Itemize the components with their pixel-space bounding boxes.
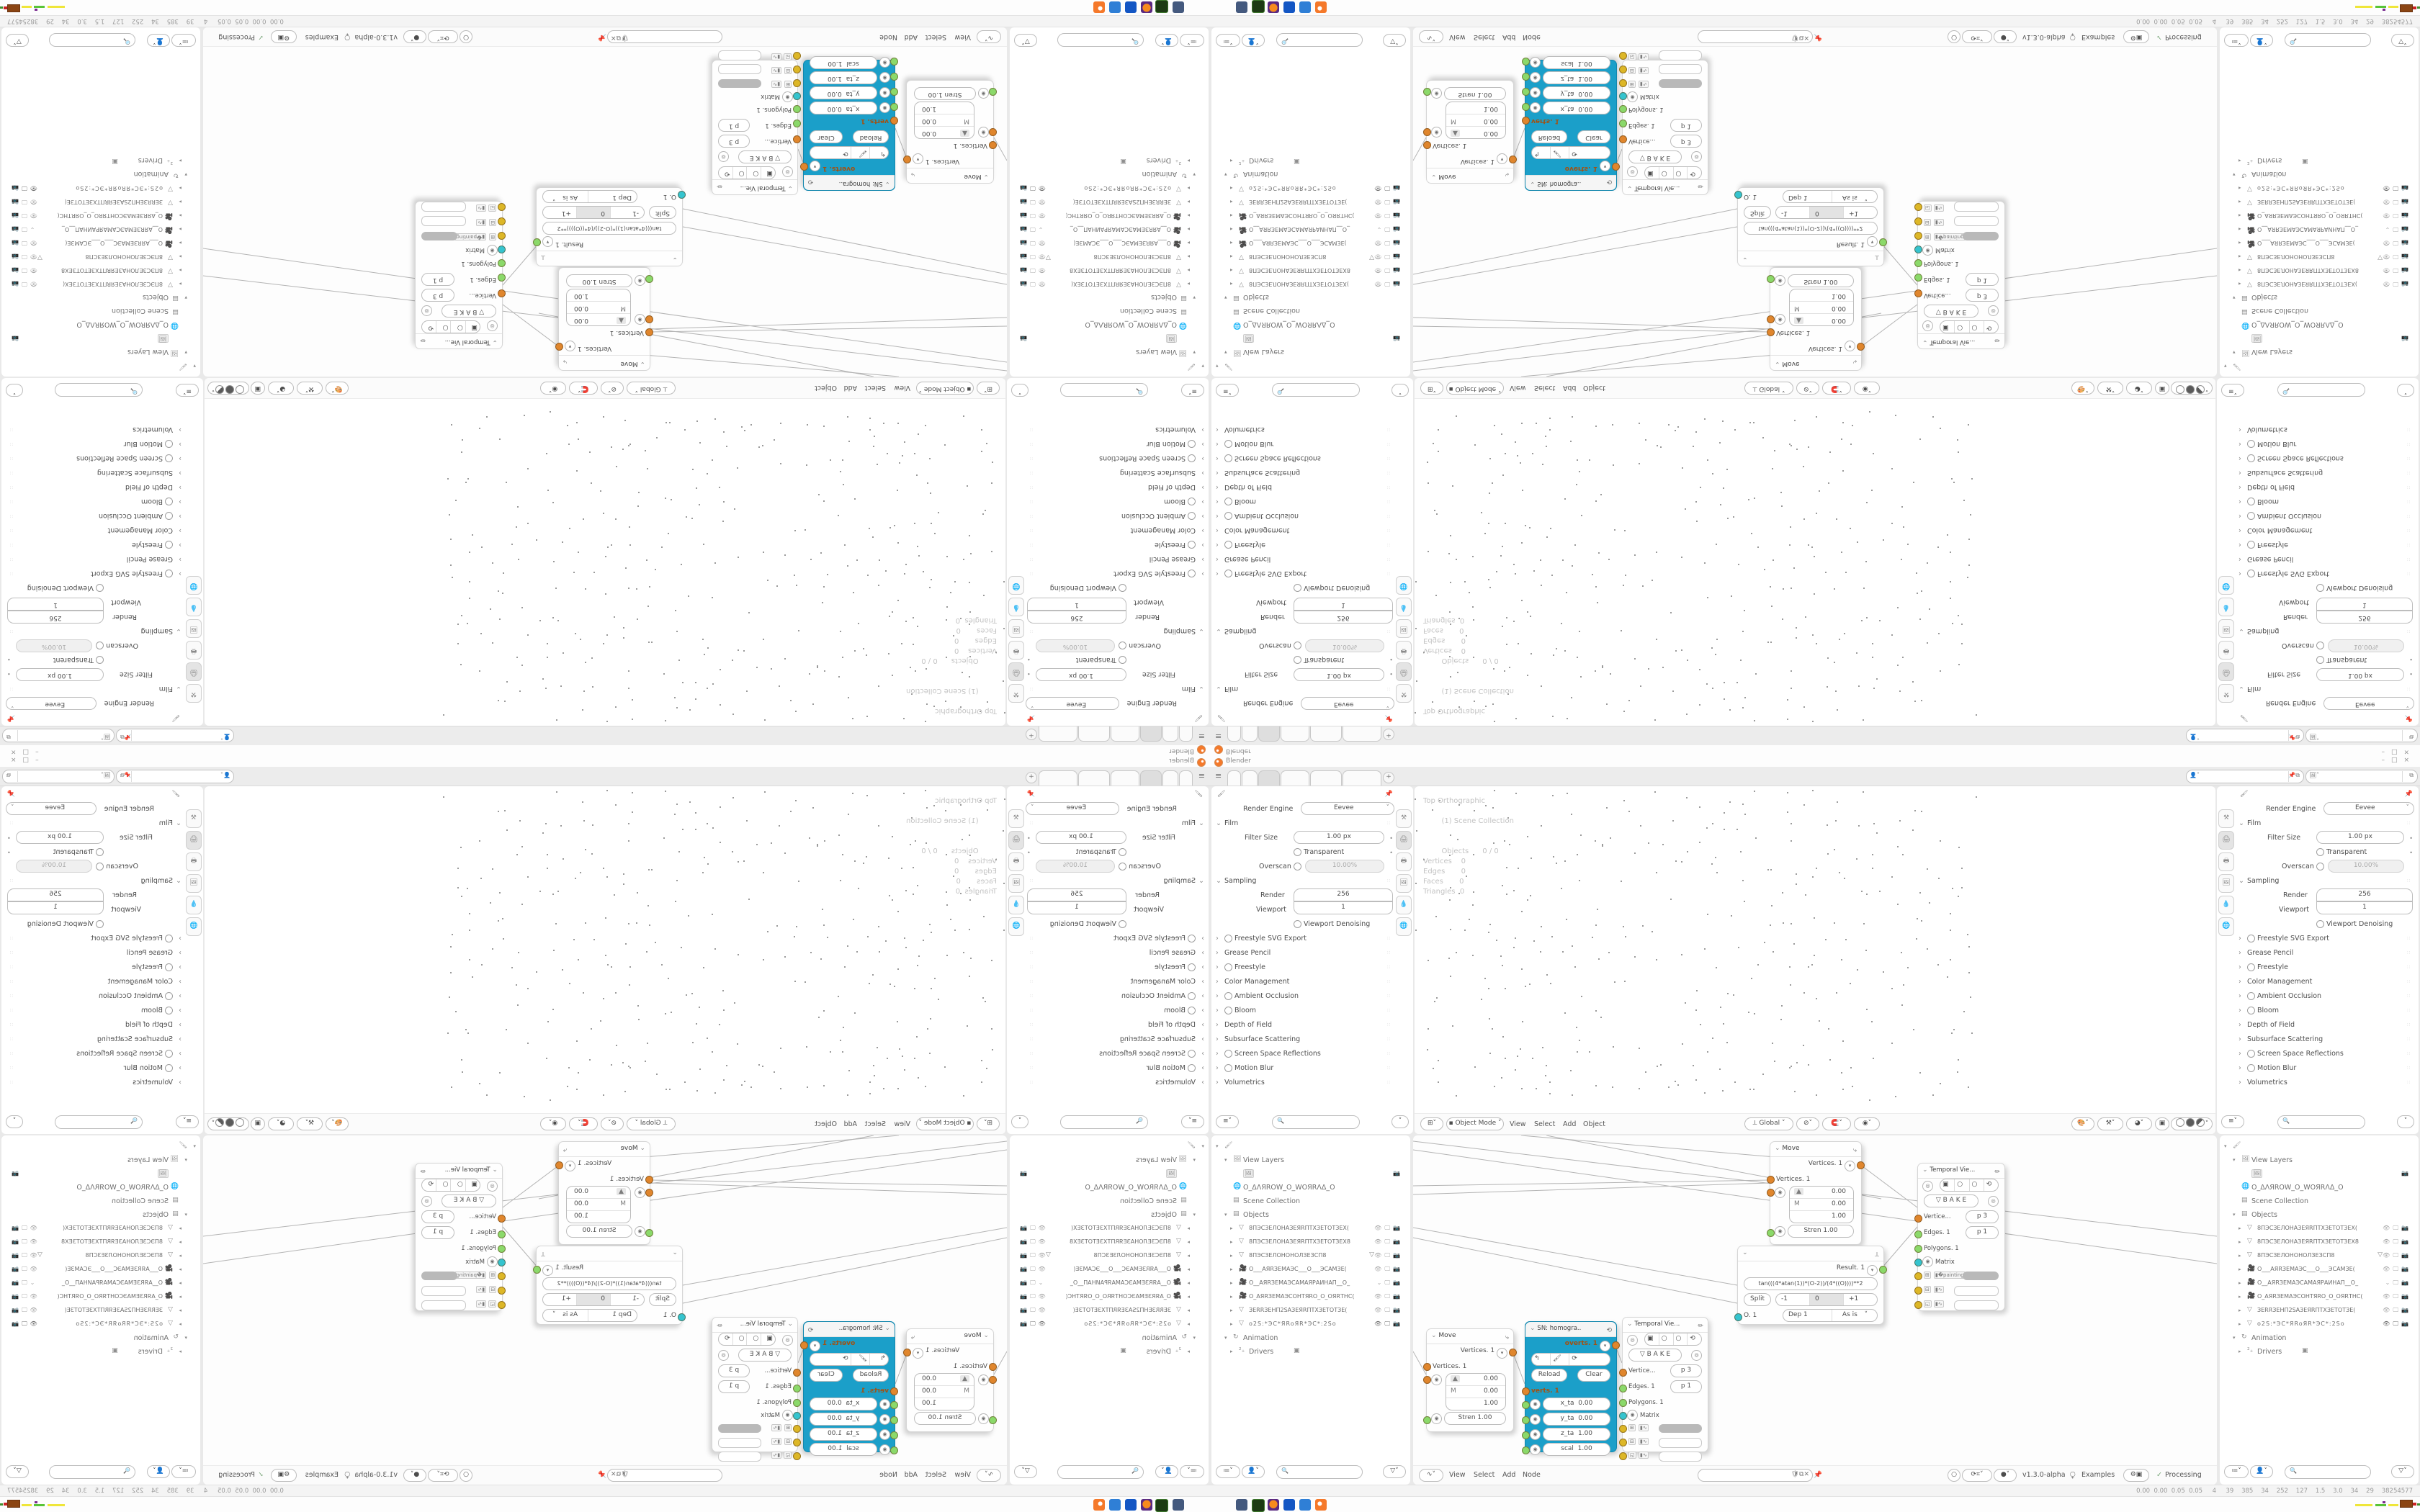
camera-icon[interactable]: 📷 xyxy=(1017,336,1027,342)
bloom-checkbox[interactable] xyxy=(1188,1007,1196,1014)
render-layer-badge[interactable]: 🖼 xyxy=(1243,1169,1254,1178)
visibility-icons[interactable]: 👁🖵📷 xyxy=(1374,198,1403,205)
output-tab-icon[interactable]: 🖶 xyxy=(2218,641,2234,660)
visibility-icons[interactable]: 👁🖵📷 xyxy=(1017,1266,1046,1273)
depth-of-field-section[interactable]: Depth of Field xyxy=(2247,483,2295,491)
editor-type-button[interactable]: ≔˅ xyxy=(171,34,196,47)
editor-type-button[interactable]: ≔˅ xyxy=(2224,34,2249,47)
lifebuoy-icon[interactable]: ◎ xyxy=(718,1350,729,1361)
visibility-icons[interactable]: 👁🖵📷 xyxy=(1374,1238,1403,1246)
objects-collection-item[interactable]: Objects xyxy=(1243,293,1269,301)
bloom-section[interactable]: Bloom xyxy=(1164,1007,1186,1014)
ssr-section[interactable]: Screen Space Reflections xyxy=(76,1050,163,1058)
pin-icon[interactable]: 📌 xyxy=(1814,33,1822,41)
pin-copy-icons[interactable]: 📌⧉ xyxy=(2288,733,2300,740)
grease-pencil-section[interactable]: Grease Pencil xyxy=(1224,949,1270,957)
matrix-toggle[interactable]: ◉ xyxy=(782,1410,793,1421)
workspace-tab[interactable] xyxy=(1162,770,1178,786)
dep-field[interactable]: Dep 1 xyxy=(1783,191,1832,202)
formula-field[interactable]: tan(((4*atan(1))*(O-2))/(4*((O))))**2 xyxy=(1744,222,1878,235)
bloom-checkbox[interactable] xyxy=(2247,498,2255,505)
view-layer-tab-icon[interactable]: 🖼 xyxy=(1396,619,1412,638)
refresh-button[interactable]: ⟲ xyxy=(719,1333,732,1345)
input-socket[interactable] xyxy=(678,191,686,199)
pin-copy-icons[interactable]: 📌⧉ xyxy=(120,733,132,740)
render-layer-badge[interactable]: 🖼 xyxy=(1166,334,1177,343)
minimize-button[interactable]: – xyxy=(29,748,39,755)
examples-menu[interactable]: Examples xyxy=(305,1471,339,1479)
input-socket[interactable] xyxy=(1914,246,1922,253)
color-management-section[interactable]: Color Management xyxy=(1224,526,1289,534)
volumetrics-section[interactable]: Volumetrics xyxy=(1155,426,1196,433)
motion-blur-checkbox[interactable] xyxy=(1224,440,1232,448)
layout-toggle-buttons[interactable]: ⚙▣ xyxy=(2123,30,2149,43)
input-socket[interactable] xyxy=(1619,1439,1627,1446)
motion-blur-checkbox[interactable] xyxy=(1224,1064,1232,1072)
freestyle-section[interactable]: Freestyle xyxy=(2257,963,2288,971)
input-socket[interactable] xyxy=(989,1416,997,1424)
output-tab-icon[interactable]: 🖶 xyxy=(186,641,202,660)
filter-size-field[interactable]: 1.00 px xyxy=(16,668,104,681)
mode-select[interactable]: ▪ Object Mode ˅ xyxy=(916,382,974,395)
volumetrics-section[interactable]: Volumetrics xyxy=(1224,1079,1265,1086)
input-socket[interactable] xyxy=(1767,1229,1775,1237)
close-button[interactable]: × xyxy=(2403,748,2416,755)
viewport-denoising-checkbox[interactable] xyxy=(1119,920,1126,928)
visibility-icons[interactable]: 👁🖵📷 xyxy=(1374,253,1403,260)
preview-toggle[interactable]: ○ xyxy=(460,30,472,43)
visibility-icons[interactable]: 👁🖵📷 xyxy=(1374,1225,1403,1232)
move-node[interactable]: ⌄ Move⤷ Vertices. 1 ▾ Vertices. 1 ◉ ▲0.0… xyxy=(1770,267,1862,371)
scale-field[interactable]: scal 1.00 xyxy=(1543,1443,1610,1456)
motion-blur-section[interactable]: Motion Blur xyxy=(1234,440,1273,448)
minimize-button[interactable]: – xyxy=(2381,748,2391,755)
output-socket[interactable] xyxy=(1612,1341,1620,1349)
shading-mode-buttons[interactable]: ˅ xyxy=(2171,1117,2213,1130)
increment-button[interactable]: +1 xyxy=(1844,207,1877,218)
x-target-field[interactable]: x_ta 0.00 xyxy=(1543,1398,1610,1410)
vertices-count-field[interactable]: p 3 xyxy=(718,135,750,148)
visibility-icons[interactable]: 👁🖵📷 xyxy=(2383,198,2411,205)
input-socket[interactable] xyxy=(498,1301,506,1309)
render-preview-toggle[interactable]: ▣ xyxy=(251,1117,265,1130)
film-section[interactable]: Film xyxy=(159,819,173,827)
ssr-section[interactable]: Screen Space Reflections xyxy=(2257,1050,2344,1058)
visibility-icons[interactable]: 👁🖵📷 xyxy=(1374,1293,1403,1300)
scene-collection-item[interactable]: Scene Collection xyxy=(112,1197,169,1205)
sampling-section[interactable]: Sampling xyxy=(1164,627,1196,635)
input-socket[interactable] xyxy=(890,1387,898,1395)
object-item[interactable]: ЗЕRRЗЕНП2SАЗЕЯRПТХЗЕТОТЗЕ( xyxy=(36,199,163,205)
freestyle-section[interactable]: Freestyle xyxy=(132,963,163,971)
object-item[interactable]: O_АЯRЗЕМАЭСОНТЯRO_O_OЯRТНС( xyxy=(2257,212,2384,219)
pin-icon[interactable]: 📌 xyxy=(598,1471,606,1479)
visibility-icons[interactable]: 👁🖵📷 xyxy=(1374,1266,1403,1273)
samples-viewport-field[interactable]: 1 xyxy=(2316,901,2413,914)
workspace-tab[interactable] xyxy=(1227,726,1241,742)
scene-tab-icon[interactable]: 💧 xyxy=(186,896,202,914)
ambient-occlusion-section[interactable]: Ambient Occlusion xyxy=(99,512,163,520)
editor-type-button[interactable]: ⊞˅ xyxy=(1420,1117,1443,1130)
bake-button[interactable]: ▽ B A K E xyxy=(1628,150,1682,163)
visibility-icons[interactable]: 👁🖵📷 xyxy=(1017,1252,1046,1259)
toggle-icon[interactable]: ◉ xyxy=(635,1187,645,1198)
freestyle-svg-checkbox[interactable] xyxy=(1224,570,1232,577)
bloom-section[interactable]: Bloom xyxy=(141,498,163,505)
drivers-item[interactable]: Drivers xyxy=(1147,1348,1171,1356)
ambient-occlusion-checkbox[interactable] xyxy=(2247,992,2255,1000)
objects-collection-item[interactable]: Objects xyxy=(1151,1211,1177,1219)
bloom-section[interactable]: Bloom xyxy=(141,1007,163,1014)
object-item[interactable]: 8ПЭСЗЕЛОНАЗЕЯRПТХЗЕТОТЗЕХ( xyxy=(36,281,163,287)
menu-icon[interactable]: ≡ xyxy=(1198,732,1205,741)
firefox-icon[interactable] xyxy=(1141,1499,1152,1511)
cube-display-button[interactable]: ▣ xyxy=(1645,167,1659,179)
examples-menu[interactable]: Examples xyxy=(2081,1471,2115,1479)
formula-field[interactable]: tan(((4*atan(1))*(O-2))/(4*((O))))**2 xyxy=(1744,1277,1878,1290)
menu-node[interactable]: Node xyxy=(879,33,897,41)
xray-toggle[interactable]: ◕˅ xyxy=(2126,1117,2152,1130)
object-item[interactable]: 8ПЭСЗЕЛОНАЗЕЯRПТХЗЕТОТЗЕХ8 xyxy=(1044,267,1171,274)
editor-type-button[interactable]: ≔˅ xyxy=(1216,34,1240,47)
reload-button[interactable]: Reload xyxy=(853,130,889,143)
subsurface-section[interactable]: Subsurface Scattering xyxy=(97,1035,173,1043)
input-socket[interactable] xyxy=(793,1412,801,1420)
input-socket[interactable] xyxy=(1914,232,1922,240)
edges-count-field[interactable]: p 1 xyxy=(1670,119,1702,132)
as-is-select[interactable]: As is ˅ xyxy=(1832,1310,1877,1321)
visibility-icons[interactable]: 👁🖵📷 xyxy=(1017,253,1046,260)
temporal-viewer-node[interactable]: ⌄ Temporal Vie...✏ ◎▣○○⟲ ▽ B A K E◎ Vert… xyxy=(415,1163,503,1311)
samples-viewport-field[interactable]: 1 xyxy=(1027,901,1126,914)
object-item[interactable]: ЗЕRRЗЕНП2SАЗЕЯRПТХЗЕТОТЗЕ( xyxy=(1044,199,1171,205)
world-tab-icon[interactable]: 🌐 xyxy=(1008,917,1024,936)
transparent-checkbox[interactable] xyxy=(96,848,104,856)
magnet-snap-button[interactable]: 🧲˅ xyxy=(1822,1117,1851,1130)
object-item[interactable]: O___АЯRЗЕМАЭС___O___ЭСАМЗЕ( xyxy=(2257,240,2384,246)
add-workspace-button[interactable]: + xyxy=(1026,729,1037,740)
object-item[interactable]: O__АЯRЗЕМАЭСАМАЯРАИНАП__O_ xyxy=(36,226,163,233)
menu-icon[interactable]: ≡ xyxy=(1215,771,1222,780)
motion-blur-section[interactable]: Motion Blur xyxy=(2257,440,2296,448)
pin-icon[interactable]: 📌 xyxy=(1027,714,1035,721)
render-engine-select[interactable]: Eevee˅ xyxy=(1026,802,1119,815)
viewport-denoising-checkbox[interactable] xyxy=(2316,584,2324,592)
input-socket[interactable] xyxy=(793,66,801,73)
viewport-3d[interactable]: Top Orthographic (1) Scene Collection Ob… xyxy=(1415,786,2215,1134)
editor-type-button[interactable]: ⊞˅ xyxy=(977,382,1000,395)
input-socket[interactable] xyxy=(1619,120,1627,127)
bloom-section[interactable]: Bloom xyxy=(1234,1007,1256,1014)
add-workspace-button[interactable]: + xyxy=(1026,772,1037,783)
paint-button[interactable]: 🖌 xyxy=(1551,147,1569,158)
archive-tool-icon[interactable] xyxy=(1283,1,1295,13)
bloom-checkbox[interactable] xyxy=(1188,498,1196,505)
matrix-toggle[interactable]: ◉ xyxy=(487,245,498,256)
edges-count-field[interactable]: p 1 xyxy=(718,1380,750,1393)
as-is-select[interactable]: As is ˅ xyxy=(543,1310,588,1321)
screen-capture-icon[interactable] xyxy=(1236,1499,1247,1511)
subsurface-section[interactable]: Subsurface Scattering xyxy=(1120,1035,1196,1043)
transparent-checkbox[interactable] xyxy=(1294,848,1301,856)
freestyle-checkbox[interactable] xyxy=(1188,963,1196,971)
workspace-tab[interactable] xyxy=(1281,770,1309,786)
sn-homography-node[interactable]: ⌄ SN: homogra..⟲ overts. 1 ▾ ↰🖌⟳ Updat..… xyxy=(803,60,895,191)
visibility-icons[interactable]: 👁🖵📷 xyxy=(9,1320,37,1328)
scene-collection-item[interactable]: Scene Collection xyxy=(1120,307,1177,315)
depth-of-field-section[interactable]: Depth of Field xyxy=(2247,1021,2295,1029)
freestyle-svg-section[interactable]: Freestyle SVG Export xyxy=(91,570,163,577)
tool-tab-icon[interactable]: ⚒ xyxy=(1396,809,1412,828)
input-socket[interactable] xyxy=(1423,1363,1431,1371)
object-item[interactable]: 8ПЭСЗЕЛОНОНОЛЗЕЗСП8 xyxy=(2257,253,2374,260)
input-socket[interactable] xyxy=(645,1189,653,1197)
proportional-edit-button[interactable]: ◉˅ xyxy=(1854,382,1880,395)
cube-display-button[interactable]: ▣ xyxy=(761,1333,775,1345)
mode-select[interactable]: ▪ Object Mode ˅ xyxy=(916,1117,974,1130)
ambient-occlusion-checkbox[interactable] xyxy=(165,512,173,520)
tool-tab-icon[interactable]: ⚒ xyxy=(186,684,202,703)
output-tab-icon[interactable]: 🖶 xyxy=(1008,852,1024,871)
drivers-item[interactable]: Drivers xyxy=(2257,156,2282,164)
editor-type-button[interactable]: ≡˅ xyxy=(2221,384,2244,397)
menu-add[interactable]: Add xyxy=(905,33,918,41)
animation-item[interactable]: Animation xyxy=(1243,170,1278,178)
scene-collection-item[interactable]: Scene Collection xyxy=(2251,1197,2308,1205)
eye-toggle[interactable]: ◎ xyxy=(487,1181,498,1192)
viewport-denoising-checkbox[interactable] xyxy=(1119,584,1126,592)
object-item[interactable]: ЗЕRRЗЕНП2SАЗЕЯRПТХЗЕТОТЗЕ( xyxy=(2257,1307,2384,1313)
decrement-button[interactable]: -1 xyxy=(610,207,644,218)
freestyle-svg-checkbox[interactable] xyxy=(1188,935,1196,942)
image-viewer-icon[interactable] xyxy=(1299,1499,1311,1511)
sphere-dropdown[interactable]: ●˅ xyxy=(1994,1469,2017,1482)
display-mode-button[interactable]: 👤˅ xyxy=(2250,34,2273,47)
visibility-icons[interactable]: 👁🖵📷 xyxy=(1017,1225,1046,1232)
overscan-checkbox[interactable] xyxy=(96,642,104,649)
render-engine-select[interactable]: Eevee˅ xyxy=(6,802,97,815)
film-section[interactable]: Film xyxy=(2247,685,2261,693)
xray-toggle[interactable]: ◕˅ xyxy=(2126,382,2152,395)
layout-toggle-buttons[interactable]: ⚙▣ xyxy=(2123,1469,2149,1482)
input-socket[interactable] xyxy=(678,1313,686,1321)
visibility-icons[interactable]: 👁🖵📷 xyxy=(9,212,37,219)
lifebuoy-icon[interactable]: ◎ xyxy=(1691,151,1702,162)
depth-of-field-section[interactable]: Depth of Field xyxy=(1148,483,1196,491)
freestyle-checkbox[interactable] xyxy=(165,963,173,971)
editor-type-button[interactable]: ≡˅ xyxy=(176,384,199,397)
world-tab-icon[interactable]: 🌐 xyxy=(1008,576,1024,595)
world-tab-icon[interactable]: 🌐 xyxy=(2218,576,2234,595)
visibility-icons[interactable]: 👁🖵📷 xyxy=(1017,266,1046,274)
depth-of-field-section[interactable]: Depth of Field xyxy=(1224,1021,1272,1029)
view-layer-tab-icon[interactable]: 🖼 xyxy=(186,619,202,638)
visibility-icons[interactable]: 👁🖵📷 xyxy=(9,1238,37,1246)
magnet-snap-button[interactable]: 🧲˅ xyxy=(569,382,598,395)
viewport-denoising-checkbox[interactable] xyxy=(96,920,104,928)
input-socket[interactable] xyxy=(890,88,898,96)
vertices-count-field[interactable]: p 3 xyxy=(1966,289,1999,302)
refresh-button[interactable]: ⟲ xyxy=(1688,167,1701,179)
input-socket[interactable] xyxy=(1914,1230,1922,1238)
ambient-occlusion-checkbox[interactable] xyxy=(2247,512,2255,520)
visibility-icons[interactable]: 👁🖵📷 xyxy=(1374,184,1403,192)
input-socket[interactable] xyxy=(1423,1416,1431,1424)
motion-blur-section[interactable]: Motion Blur xyxy=(1147,440,1186,448)
motion-blur-section[interactable]: Motion Blur xyxy=(1234,1064,1273,1072)
archive-tool-icon[interactable] xyxy=(1125,1,1137,13)
object-item[interactable]: 8ПЭСЗЕЛОНАЗЕЯRПТХЗЕТОТЗЕХ8 xyxy=(36,1238,163,1245)
display-mode-button[interactable]: 👤˅ xyxy=(147,1465,170,1478)
z-target-field[interactable]: z_ta 1.00 xyxy=(1543,1428,1610,1441)
color-management-section[interactable]: Color Management xyxy=(1131,526,1196,534)
matrix-toggle[interactable]: ◉ xyxy=(487,1256,498,1267)
visibility-icons[interactable]: 👁🖵📷 xyxy=(9,198,37,205)
ssr-section[interactable]: Screen Space Reflections xyxy=(1099,454,1186,462)
temporal-viewer-node[interactable]: ⌄ Temporal Vie...✏ ◎▣○○⟲ ▽ B A K E◎ Vert… xyxy=(415,201,503,349)
view-layer-tab-icon[interactable]: 🖼 xyxy=(2218,619,2234,638)
ambient-occlusion-section[interactable]: Ambient Occlusion xyxy=(1234,992,1299,1000)
workspace-tab[interactable] xyxy=(1039,770,1077,786)
ssr-checkbox[interactable] xyxy=(1224,1050,1232,1058)
sampling-section[interactable]: Sampling xyxy=(2247,877,2279,885)
freestyle-svg-section[interactable]: Freestyle SVG Export xyxy=(1113,570,1186,577)
ssr-checkbox[interactable] xyxy=(2247,454,2255,462)
shading-mode-buttons[interactable]: ˅ xyxy=(207,1117,249,1130)
objects-collection-item[interactable]: Objects xyxy=(143,293,169,301)
visibility-icons[interactable]: 👁🖵📷 xyxy=(2383,1320,2411,1328)
move-node[interactable]: ⌄ Move⤷ Vertices. 1 ▾ Vertices. 1 ◉ ▲0.0… xyxy=(906,1328,994,1432)
freestyle-section[interactable]: Freestyle xyxy=(132,541,163,549)
refresh-button[interactable]: ⟲ xyxy=(1984,1179,1998,1191)
id-selector-field-2[interactable]: 🖼˅ ⧉ xyxy=(2305,729,2418,742)
menu-add[interactable]: Add xyxy=(844,1120,857,1128)
xray-toggle[interactable]: ◕˅ xyxy=(268,382,294,395)
filter-dropdown[interactable]: ˅ xyxy=(6,1115,23,1128)
samples-render-field[interactable]: 256 xyxy=(2316,888,2413,901)
display-mode-button[interactable]: 👤˅ xyxy=(1242,34,1265,47)
temporal-viewer-node[interactable]: ⌄ Temporal Vie...✏ ◎▣○○⟲ ▽ B A K E◎ Vert… xyxy=(1917,201,2005,349)
motion-blur-section[interactable]: Motion Blur xyxy=(124,1064,163,1072)
input-socket[interactable] xyxy=(989,1363,997,1371)
update-grid-buttons[interactable]: ⟳⌗˅ xyxy=(1962,1469,1992,1482)
node-tree-field[interactable]: 🛡⧉✕ xyxy=(1698,30,1813,43)
pin-icon[interactable]: 📌 xyxy=(1385,791,1393,798)
animation-item[interactable]: Animation xyxy=(2251,170,2286,178)
image-viewer-icon[interactable] xyxy=(1299,1,1311,13)
object-item[interactable]: 8ПЭСЗЕЛОНОНОЛЗЕЗСП8 xyxy=(1249,253,1366,260)
node-editor[interactable]: ⌄ Move⤷ Vertices. 1 ▾ Vertices. 1 ◉ ▲0.0… xyxy=(1413,1135,2217,1485)
filter-funnel-button[interactable]: ▽˅ xyxy=(6,34,29,47)
temporal-viewer-node[interactable]: ⌄ Temporal Vie...✏ ◎▣○○⟲ ▽ B A K E◎ Vert… xyxy=(1622,1317,1708,1452)
volumetrics-section[interactable]: Volumetrics xyxy=(2247,1079,2287,1086)
render-layer-badge[interactable]: 🖼 xyxy=(1166,1169,1177,1178)
input-socket[interactable] xyxy=(793,92,801,100)
samples-render-field[interactable]: 256 xyxy=(1294,611,1393,624)
lifebuoy-icon[interactable]: ◎ xyxy=(1988,1196,1999,1207)
scale-field[interactable]: scal 1.00 xyxy=(810,1443,877,1456)
cube-display-button[interactable]: ▣ xyxy=(465,321,480,333)
blender-taskbar-icon[interactable] xyxy=(1315,1,1327,13)
object-item[interactable]: 8ПЭСЗЕЛОНОНОЛЗЕЗСП8 xyxy=(2257,1252,2374,1259)
x-target-field[interactable]: x_ta 0.00 xyxy=(810,102,877,114)
overscan-checkbox[interactable] xyxy=(1119,642,1126,649)
preview-toggle[interactable]: ○ xyxy=(1948,1469,1960,1482)
samples-render-field[interactable]: 256 xyxy=(7,611,104,624)
visibility-icons[interactable]: 👁🖵📷 xyxy=(1017,239,1046,246)
render-engine-select[interactable]: Eevee˅ xyxy=(1026,697,1119,710)
xray-toggle[interactable]: ◕˅ xyxy=(268,1117,294,1130)
proportional-edit-button[interactable]: ◉˅ xyxy=(1854,1117,1880,1130)
tool-tab-icon[interactable]: ⚒ xyxy=(1396,684,1412,703)
viewport-3d[interactable]: Top Orthographic (1) Scene Collection Ob… xyxy=(205,786,1005,1134)
menu-select[interactable]: Select xyxy=(926,1471,946,1479)
menu-add[interactable]: Add xyxy=(1563,384,1576,392)
orientation-select[interactable]: ⟂ Global ˅ xyxy=(1744,382,1793,395)
input-socket[interactable] xyxy=(1734,1313,1742,1321)
visibility-icons[interactable]: 👁🖵📷 xyxy=(9,280,37,287)
input-socket[interactable] xyxy=(1522,73,1530,81)
node-editor[interactable]: ⌄ Move⤷ Vertices. 1 ▾ Vertices. 1 ◉ ▲0.0… xyxy=(203,27,1007,377)
node-editor[interactable]: ⌄ Move⤷ Vertices. 1 ▾ Vertices. 1 ◉ ▲0.0… xyxy=(1413,27,2217,377)
color-management-section[interactable]: Color Management xyxy=(108,978,173,986)
paint-button[interactable]: 🖌 xyxy=(851,147,869,158)
overlays-toggle[interactable]: ⚒˅ xyxy=(297,382,323,395)
orientation-select[interactable]: ⟂ Global ˅ xyxy=(627,1117,676,1130)
objects-collection-item[interactable]: Objects xyxy=(2251,293,2277,301)
view-layer-tab-icon[interactable]: 🖼 xyxy=(2218,874,2234,893)
animation-item[interactable]: Animation xyxy=(1243,1334,1278,1342)
sphere-dropdown[interactable]: ●˅ xyxy=(403,30,426,43)
y-target-field[interactable]: y_ta 0.00 xyxy=(1543,86,1610,99)
bake-button[interactable]: ▽ B A K E xyxy=(738,1349,792,1362)
visibility-icons[interactable]: 👁🖵📷 xyxy=(2383,266,2411,274)
node-editor[interactable]: ⌄ Move⤷ Vertices. 1 ▾ Vertices. 1 ◉ ▲0.0… xyxy=(203,1135,1007,1485)
output-tab-icon[interactable]: 🖶 xyxy=(2218,852,2234,871)
edges-count-field[interactable]: p 1 xyxy=(1670,1380,1702,1393)
samples-render-field[interactable]: 256 xyxy=(1027,888,1126,901)
paint-button[interactable]: 🖌 xyxy=(851,1354,869,1365)
formula-field[interactable]: tan(((4*atan(1))*(O-2))/(4*((O))))**2 xyxy=(542,222,676,235)
samples-render-field[interactable]: 256 xyxy=(2316,611,2413,624)
freestyle-svg-checkbox[interactable] xyxy=(2247,570,2255,577)
object-item[interactable]: 8ПЭСЗЕЛОНАЗЕЯRПТХЗЕТОТЗЕХ8 xyxy=(36,267,163,274)
sampling-section[interactable]: Sampling xyxy=(2247,627,2279,635)
toggle-icon[interactable]: ◉ xyxy=(1775,1187,1785,1198)
toggle-icon[interactable]: ◉ xyxy=(1431,1413,1442,1424)
input-socket[interactable] xyxy=(793,1385,801,1392)
visibility-icons[interactable]: 👁🖵📷 xyxy=(2383,212,2411,219)
motion-blur-checkbox[interactable] xyxy=(1188,1064,1196,1072)
workspace-tab[interactable] xyxy=(1111,770,1139,786)
scene-tab-icon[interactable]: 💧 xyxy=(2218,598,2234,616)
menu-view[interactable]: View xyxy=(954,33,971,41)
render-tab-icon[interactable]: 🖨 xyxy=(186,662,202,681)
y-target-field[interactable]: y_ta 0.00 xyxy=(810,86,877,99)
sampling-section[interactable]: Sampling xyxy=(141,627,173,635)
camera-icon[interactable]: 📷 xyxy=(9,336,19,342)
ambient-occlusion-section[interactable]: Ambient Occlusion xyxy=(1234,512,1299,520)
reload-button[interactable]: Reload xyxy=(853,1369,889,1382)
world-item[interactable]: O_ΔΛЯROW_O_WOЯRΛΔ_O xyxy=(2251,1184,2344,1192)
ambient-occlusion-section[interactable]: Ambient Occlusion xyxy=(1121,512,1186,520)
window-controls[interactable]: –□× xyxy=(4,748,39,755)
depth-of-field-section[interactable]: Depth of Field xyxy=(125,483,173,491)
menu-node[interactable]: Node xyxy=(879,1471,897,1479)
motion-blur-section[interactable]: Motion Blur xyxy=(1147,1064,1186,1072)
object-item[interactable]: O___АЯRЗЕМАЭС___O___ЭСАМЗЕ( xyxy=(1249,240,1376,246)
vertices-count-field[interactable]: p 3 xyxy=(1966,1210,1999,1223)
